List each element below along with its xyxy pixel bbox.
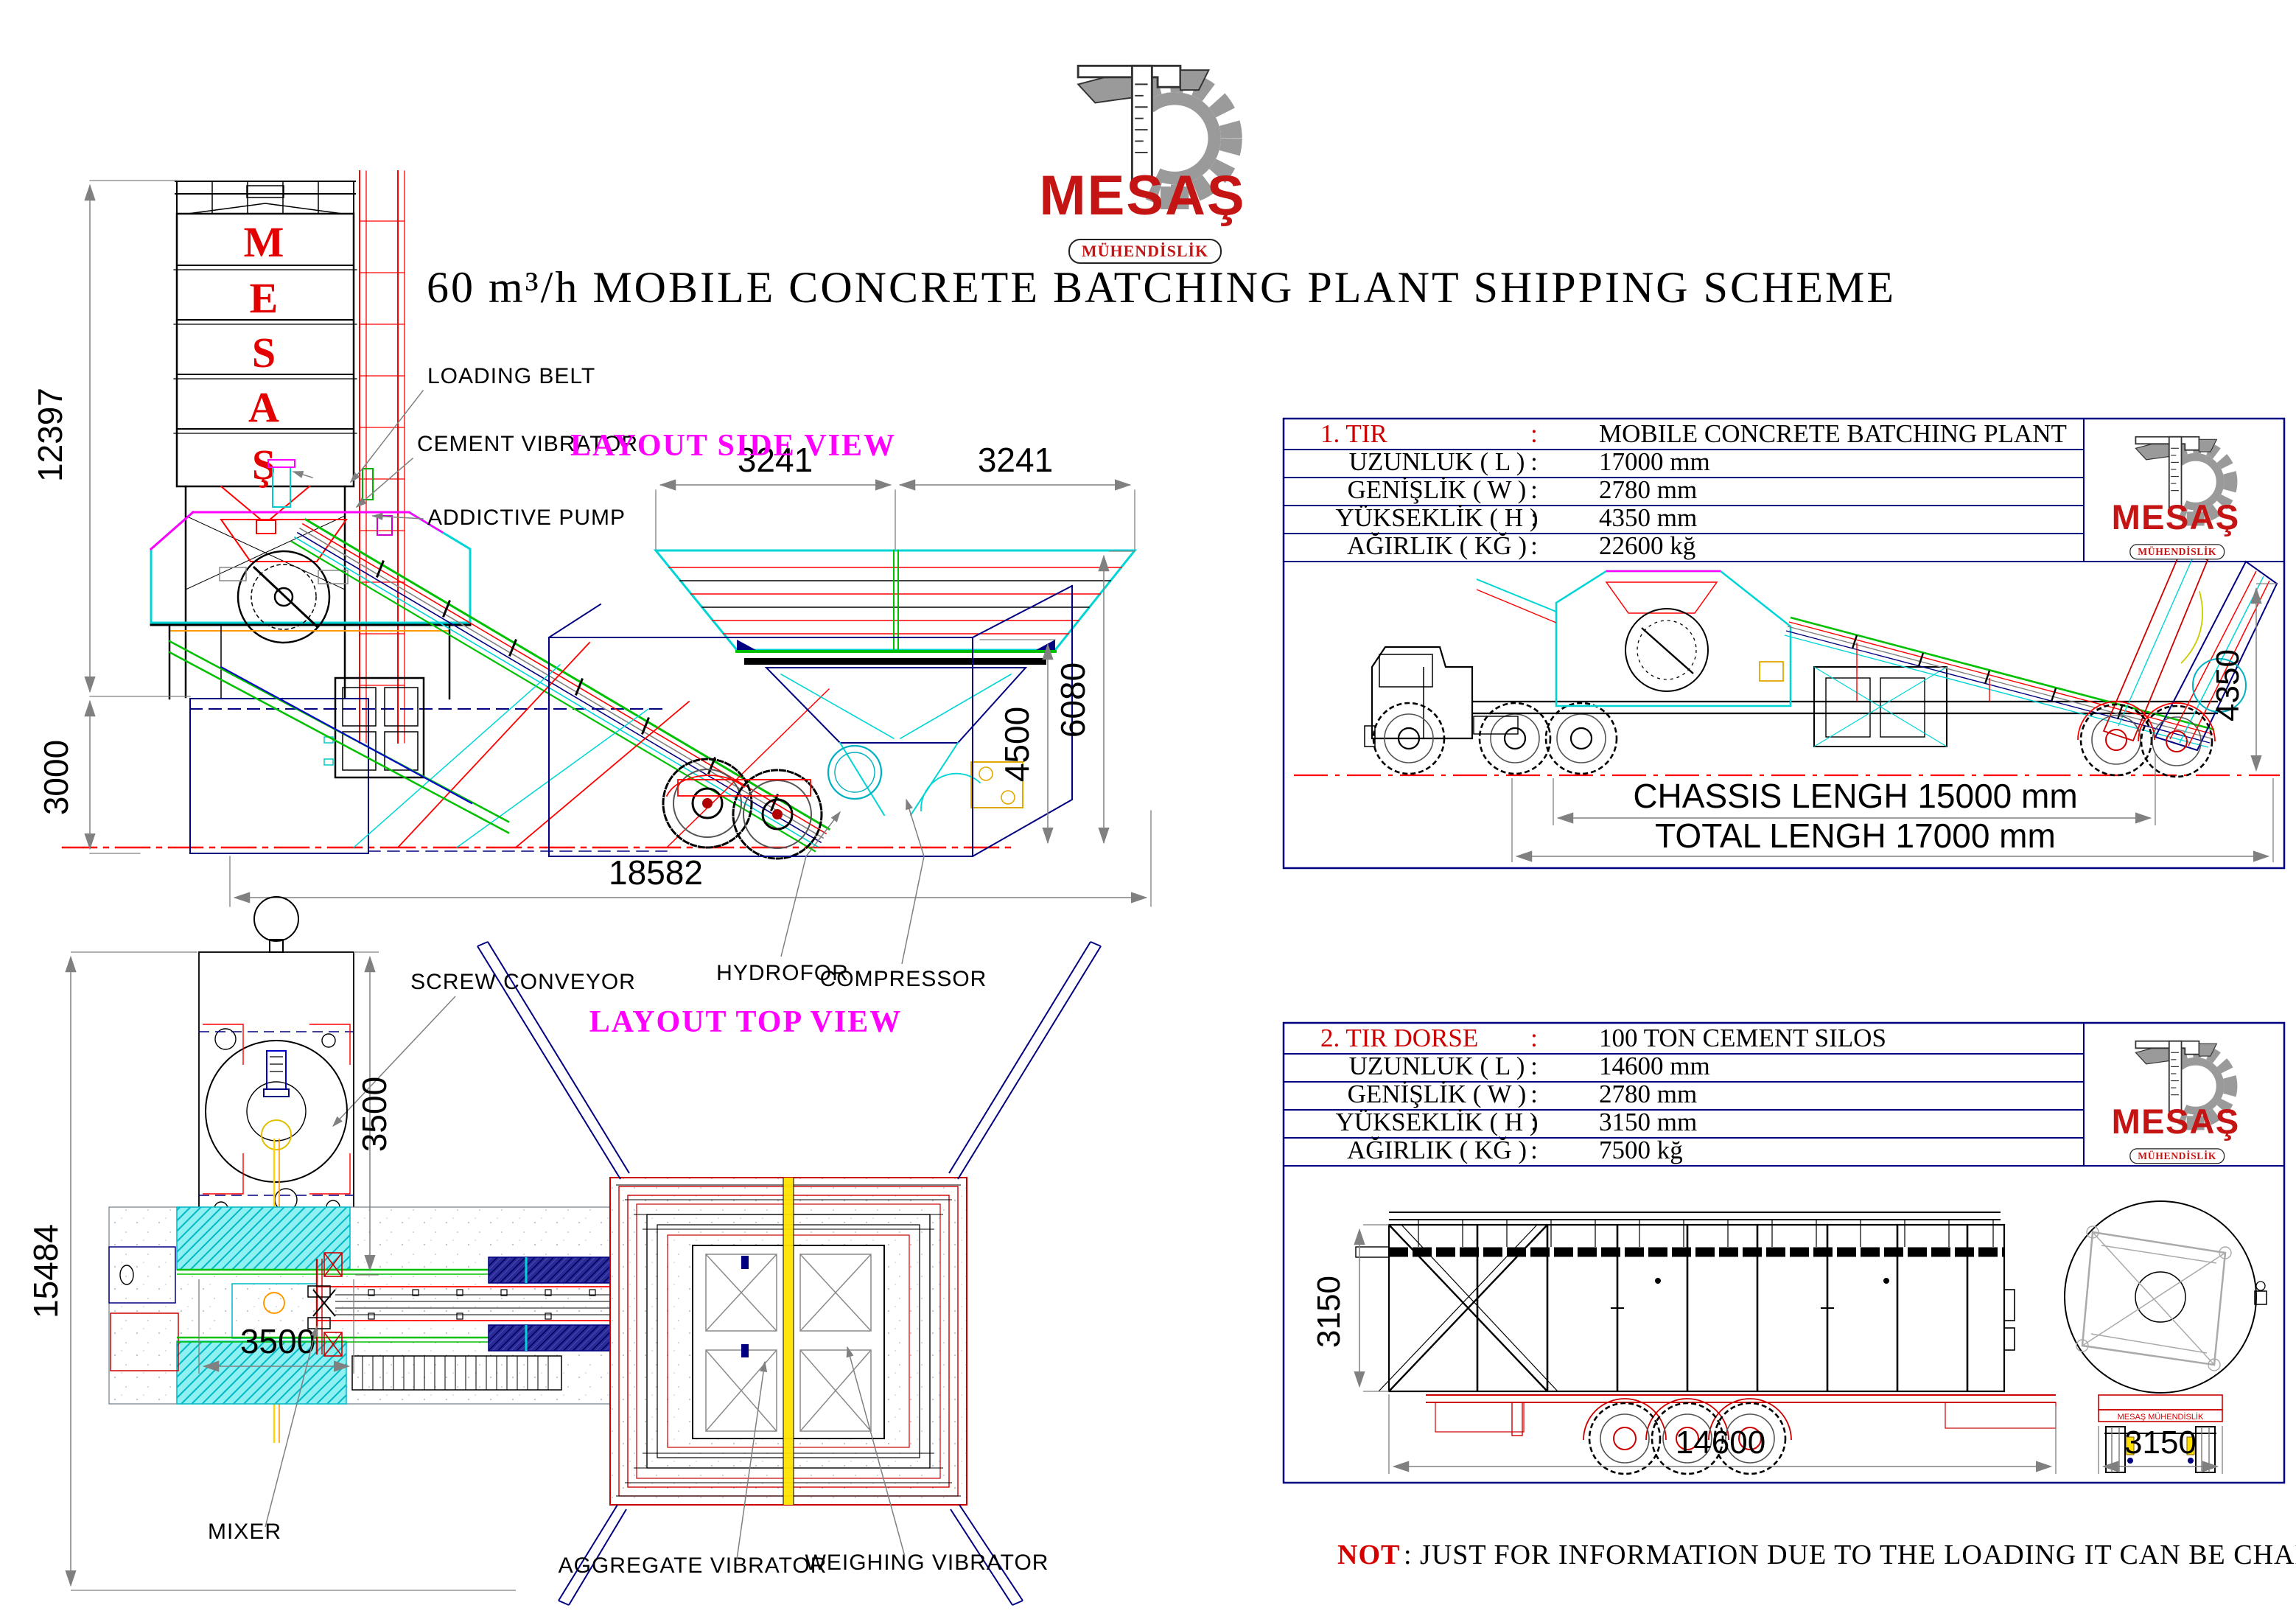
mesas-logo-table2: MESAŞ MÜHENDİSLİK	[2106, 1033, 2266, 1167]
callout-screw-conveyor: SCREW CONVEYOR	[410, 970, 636, 994]
s2-row2-sep: :	[1530, 1080, 1538, 1108]
dim-trailer-length: 14600	[1676, 1425, 1765, 1461]
s1-header-label: 1. TIR	[1320, 419, 1387, 448]
callout-aggregate-vibrator: AGGREGATE VIBRATOR	[559, 1553, 827, 1578]
s2-row4-sep: :	[1530, 1136, 1538, 1164]
s2-row1-value: 14600 mm	[1599, 1052, 1710, 1080]
s1-row1-value: 17000 mm	[1599, 447, 1710, 476]
dim-foundation-depth: 3000	[37, 740, 75, 815]
s2-row2-label: GENİŞLİK ( W )	[1348, 1080, 1527, 1108]
dim-truck-height: 4350	[2210, 649, 2246, 721]
dim-silo-width: 3500	[240, 1322, 315, 1360]
note-label: NOT	[1337, 1539, 1400, 1570]
s1-header-sep: :	[1530, 419, 1538, 448]
logo-brand: MESAŞ	[2106, 1102, 2245, 1142]
logo-subtitle: MÜHENDİSLİK	[1068, 239, 1222, 264]
s2-row4-value: 7500 kğ	[1599, 1136, 1683, 1164]
s1-row2-label: GENİŞLİK ( W )	[1348, 475, 1527, 504]
s2-row3-value: 3150 mm	[1599, 1108, 1697, 1136]
shipping-scheme-drawing: 60 m³/h MOBILE CONCRETE BATCHING PLANT S…	[0, 0, 2296, 1622]
top-view-label: LAYOUT TOP VIEW	[589, 1005, 903, 1039]
callout-weighing-vibrator: WEIGHING VIBRATOR	[805, 1551, 1049, 1575]
dim-rear-width: 3150	[2124, 1425, 2197, 1461]
s1-row3-value: 4350 mm	[1599, 503, 1697, 532]
s1-row3-sep: :	[1530, 503, 1538, 532]
callout-addictive-pump: ADDICTIVE PUMP	[427, 506, 626, 530]
page-title: 60 m³/h MOBILE CONCRETE BATCHING PLANT S…	[427, 263, 1896, 312]
logo-brand: MESAŞ	[1030, 164, 1255, 228]
s1-row2-value: 2780 mm	[1599, 475, 1697, 504]
mesas-logo-table1: MESAŞ MÜHENDİSLİK	[2106, 429, 2266, 562]
logo-subtitle: MÜHENDİSLİK	[2129, 544, 2225, 559]
s1-row4-value: 22600 kğ	[1599, 531, 1695, 560]
s1-header-value: MOBILE CONCRETE BATCHING PLANT	[1599, 419, 2067, 448]
silo-letter-e: E	[250, 274, 279, 322]
dim-truck-total-length: TOTAL LENGH 17000 mm	[1655, 817, 2056, 855]
s2-row1-sep: :	[1530, 1052, 1538, 1080]
s1-row4-sep: :	[1530, 531, 1538, 560]
s2-row4-label: AĞIRLIK ( KĞ )	[1347, 1136, 1527, 1164]
s2-header-label: 2. TIR DORSE	[1320, 1024, 1478, 1052]
dim-plant-height: 6080	[1054, 663, 1092, 738]
callout-loading-belt: LOADING BELT	[427, 364, 595, 388]
callout-mixer: MIXER	[208, 1520, 281, 1544]
s1-row4-label: AĞIRLIK ( KĞ )	[1347, 531, 1527, 560]
callout-compressor: COMPRESSOR	[820, 967, 987, 991]
s1-row1-sep: :	[1530, 447, 1538, 476]
dim-bin-right: 3241	[978, 441, 1053, 479]
s2-row3-sep: :	[1530, 1108, 1538, 1136]
logo-subtitle: MÜHENDİSLİK	[2129, 1148, 2225, 1164]
side-view-label: LAYOUT SIDE VIEW	[570, 429, 896, 463]
dim-plant-width: 15484	[27, 1224, 65, 1318]
dim-total-length: 18582	[609, 853, 703, 892]
dim-chassis-length: CHASSIS LENGH 15000 mm	[1633, 777, 2077, 815]
dim-silo-height: 12397	[31, 388, 69, 482]
dim-silo-length: 3500	[355, 1077, 393, 1152]
logo-brand: MESAŞ	[2106, 497, 2245, 537]
s2-row3-label: YÜKSEKLİK ( H )	[1335, 1108, 1538, 1136]
dim-hopper-height: 4500	[998, 707, 1036, 782]
s1-row1-label: UZUNLUK ( L )	[1349, 447, 1525, 476]
silo-letter-m: M	[244, 218, 284, 266]
trailer-brand-text: MESAŞ MÜHENDİSLİK	[2118, 1412, 2204, 1422]
mesas-logo-header: MESAŞ MÜHENDİSLİK	[1030, 53, 1288, 268]
dim-trailer-height: 3150	[1311, 1276, 1347, 1348]
s2-row2-value: 2780 mm	[1599, 1080, 1697, 1108]
note-text: : JUST FOR INFORMATION DUE TO THE LOADIN…	[1404, 1539, 2296, 1570]
s2-header-value: 100 TON CEMENT SILOS	[1599, 1024, 1886, 1052]
s2-header-sep: :	[1530, 1024, 1538, 1052]
silo-letter-a: A	[248, 383, 279, 431]
s2-row1-label: UZUNLUK ( L )	[1349, 1052, 1525, 1080]
silo-letter-s: S	[252, 329, 276, 377]
s1-row3-label: YÜKSEKLİK ( H )	[1335, 503, 1538, 532]
s1-row2-sep: :	[1530, 475, 1538, 504]
